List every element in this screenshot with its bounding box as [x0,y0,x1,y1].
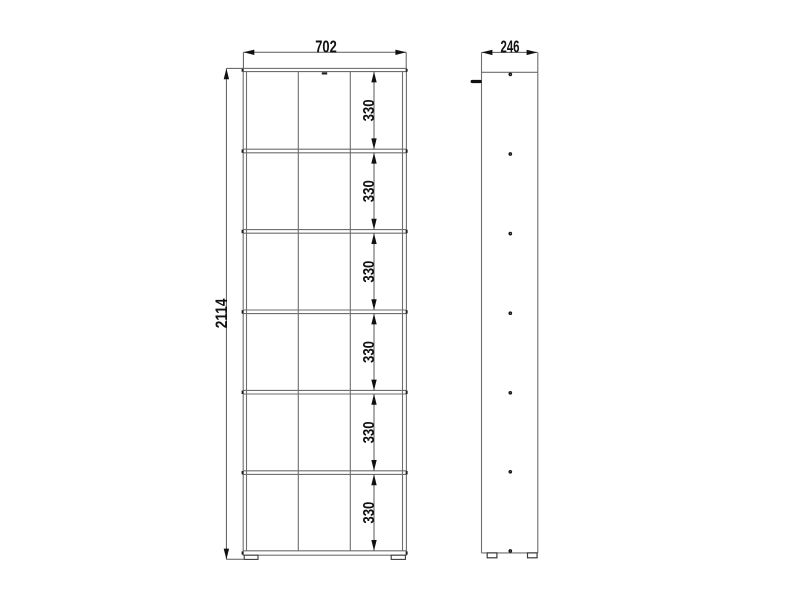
svg-text:330: 330 [361,261,378,283]
svg-text:330: 330 [361,502,378,524]
svg-text:702: 702 [315,37,337,57]
svg-text:330: 330 [361,421,378,443]
svg-text:246: 246 [501,37,520,57]
svg-text:2114: 2114 [212,298,231,328]
svg-text:330: 330 [361,341,378,363]
svg-text:330: 330 [361,180,378,202]
svg-text:330: 330 [361,99,378,121]
